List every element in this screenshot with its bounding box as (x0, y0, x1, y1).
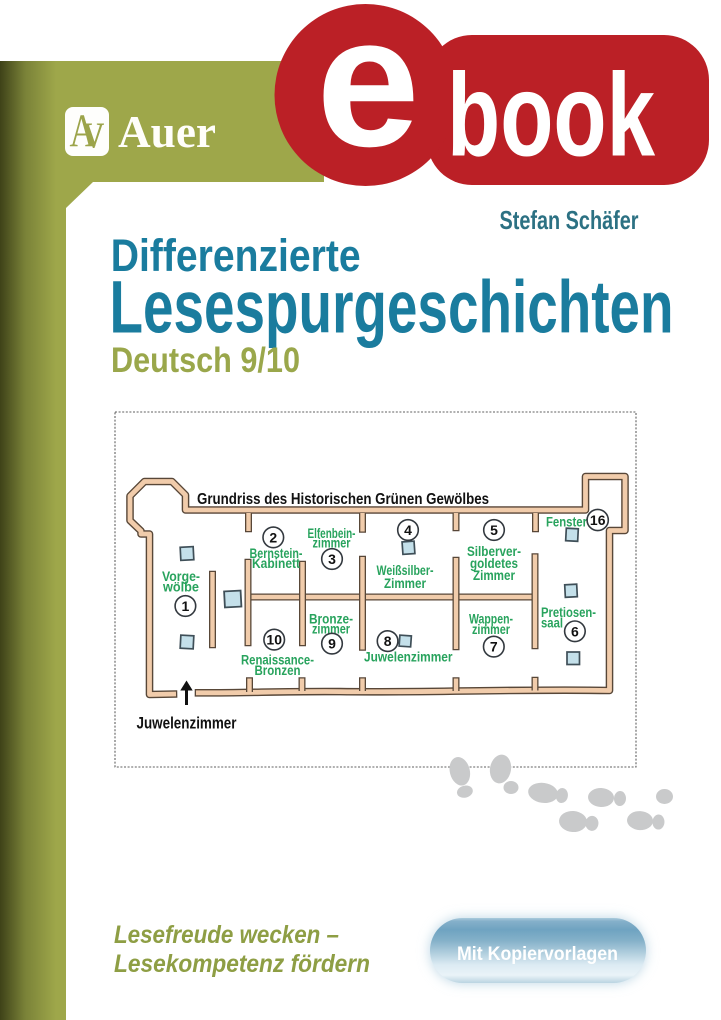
svg-text:v: v (83, 103, 104, 160)
svg-text:3: 3 (328, 551, 336, 567)
svg-text:Lesespurgeschichten: Lesespurgeschichten (110, 265, 674, 348)
svg-text:9: 9 (328, 636, 336, 652)
svg-text:Lesefreude wecken –: Lesefreude wecken – (114, 921, 339, 949)
svg-text:Auer: Auer (118, 107, 216, 157)
svg-text:10: 10 (266, 632, 282, 648)
svg-text:Grundriss des Historischen Grü: Grundriss des Historischen Grünen Gewölb… (197, 491, 489, 508)
svg-text:Zimmer: Zimmer (473, 568, 516, 583)
svg-text:Kabinett: Kabinett (252, 556, 300, 571)
svg-text:saal: saal (541, 616, 563, 631)
svg-text:zimmer: zimmer (472, 622, 511, 637)
svg-text:e: e (316, 0, 419, 186)
svg-text:7: 7 (490, 639, 498, 655)
svg-text:16: 16 (590, 512, 606, 528)
svg-text:2: 2 (269, 529, 277, 545)
svg-text:Bronzen: Bronzen (255, 663, 301, 678)
svg-text:Juwelenzimmer: Juwelenzimmer (137, 715, 237, 733)
svg-text:wölbe: wölbe (162, 580, 199, 595)
svg-text:4: 4 (404, 522, 412, 538)
svg-text:Juwelenzimmer: Juwelenzimmer (364, 650, 453, 665)
svg-text:5: 5 (490, 522, 498, 538)
svg-text:1: 1 (182, 598, 190, 614)
svg-text:Stefan Schäfer: Stefan Schäfer (500, 205, 639, 235)
svg-text:Deutsch 9/10: Deutsch 9/10 (111, 340, 300, 380)
svg-text:Fenster: Fenster (546, 515, 588, 530)
svg-text:Mit Kopiervorlagen: Mit Kopiervorlagen (457, 944, 618, 965)
svg-text:book: book (447, 50, 655, 182)
svg-text:6: 6 (571, 623, 579, 639)
svg-text:Lesekompetenz fördern: Lesekompetenz fördern (114, 950, 370, 978)
svg-text:8: 8 (384, 633, 392, 649)
svg-text:Zimmer: Zimmer (384, 576, 427, 591)
